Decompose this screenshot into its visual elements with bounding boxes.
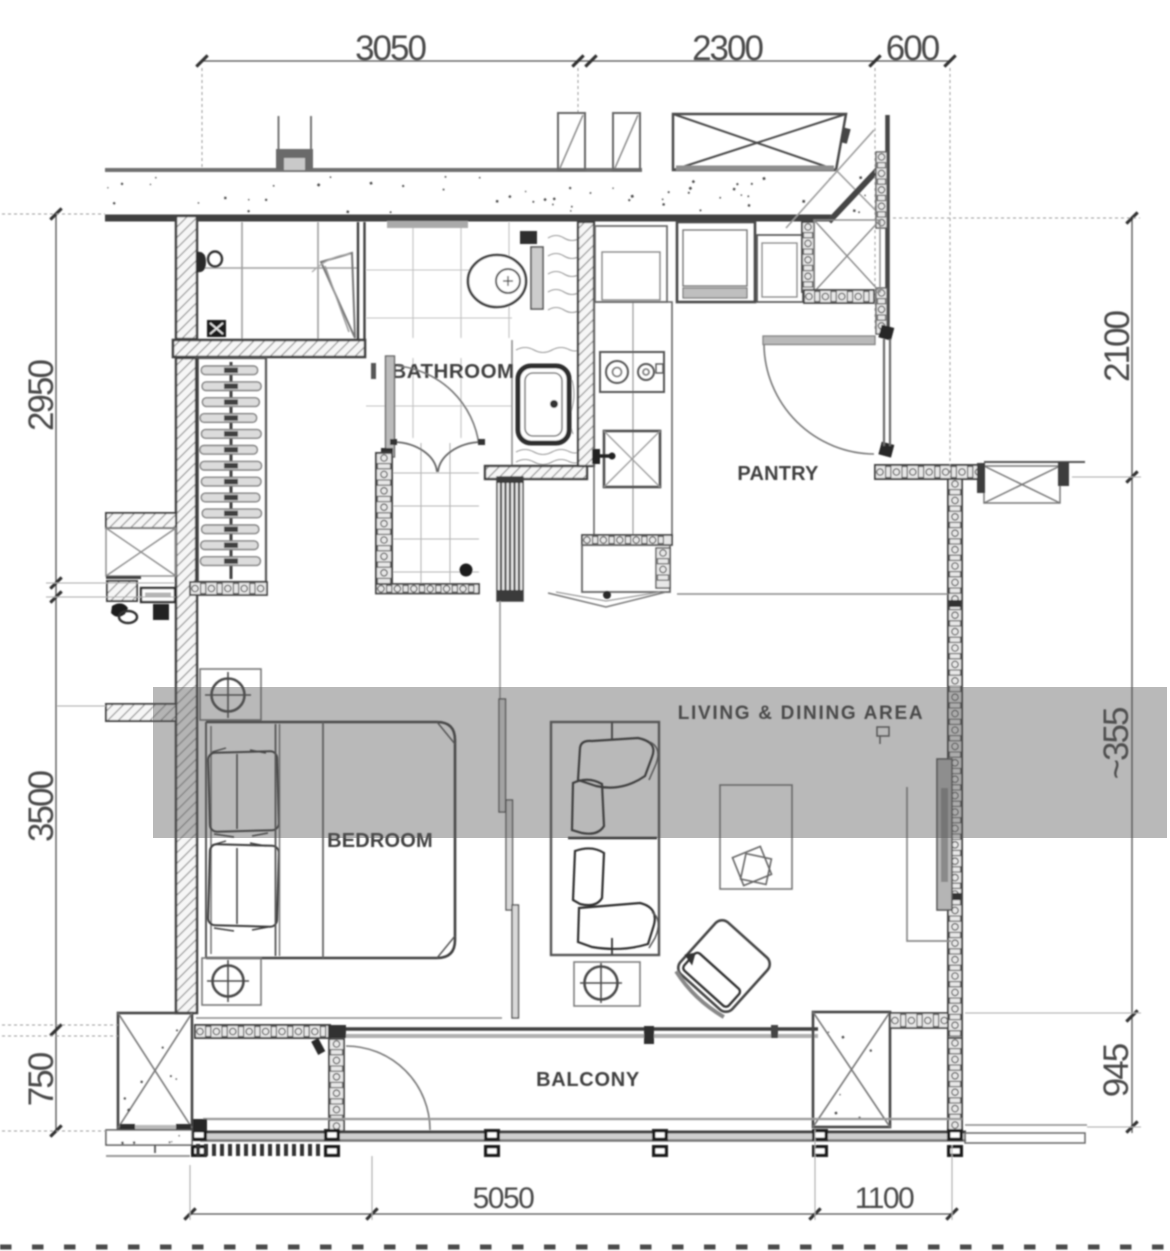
svg-text:PANTRY: PANTRY bbox=[737, 463, 819, 485]
svg-text:3500: 3500 bbox=[22, 771, 61, 842]
svg-text:750: 750 bbox=[22, 1052, 61, 1106]
svg-text:2950: 2950 bbox=[22, 360, 61, 431]
svg-text:945: 945 bbox=[1097, 1044, 1136, 1097]
svg-text:BATHROOM: BATHROOM bbox=[391, 360, 514, 383]
svg-text:1100: 1100 bbox=[855, 1182, 914, 1215]
svg-text:600: 600 bbox=[886, 29, 940, 68]
svg-text:3050: 3050 bbox=[355, 29, 426, 68]
svg-text:BALCONY: BALCONY bbox=[536, 1069, 640, 1091]
svg-text:2300: 2300 bbox=[692, 29, 763, 68]
svg-text:2100: 2100 bbox=[1098, 311, 1137, 382]
svg-text:5050: 5050 bbox=[473, 1182, 535, 1215]
